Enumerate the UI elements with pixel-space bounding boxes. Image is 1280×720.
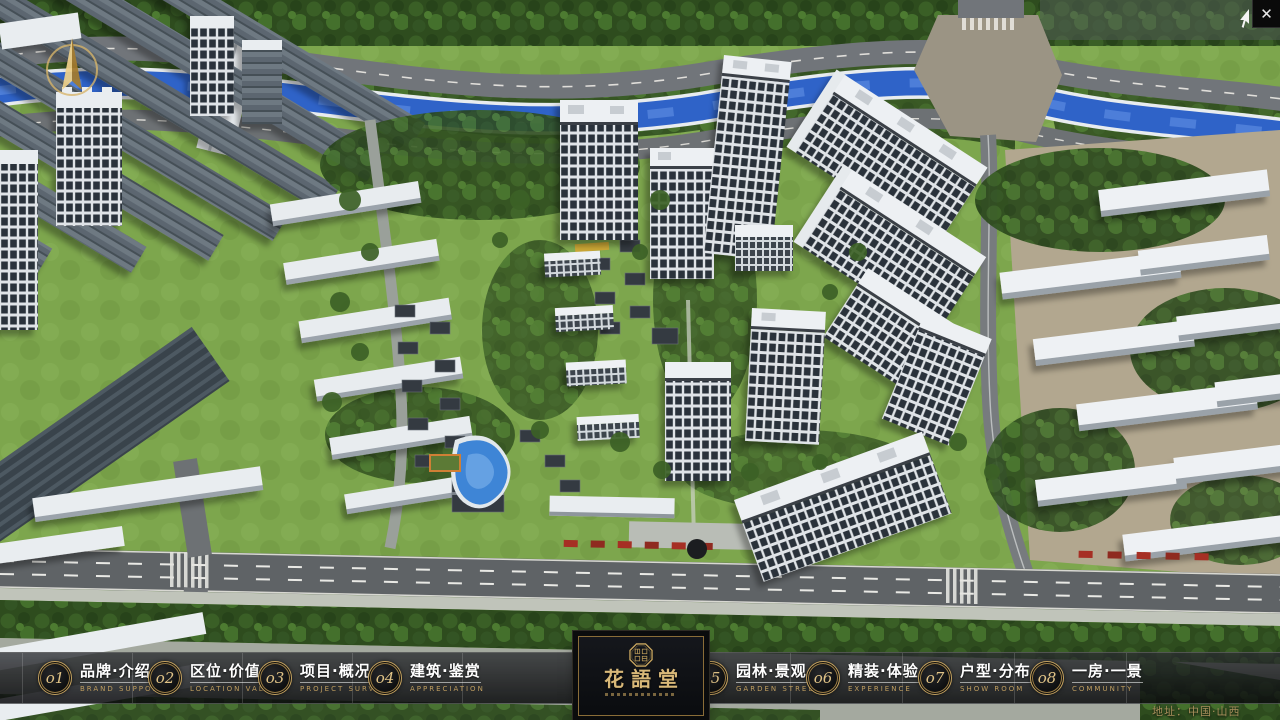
pavilion bbox=[652, 328, 678, 344]
nav-number-badge: o8 bbox=[1030, 661, 1064, 695]
masterplan-render bbox=[0, 0, 1280, 720]
nav-item-architecture[interactable]: o4 建筑·鉴赏 APPRECIATION bbox=[368, 653, 485, 703]
nav-item-unit-distribution[interactable]: o7 户型·分布 SHOW ROOM bbox=[918, 653, 1031, 703]
nav-label-zh: 区位·价值 bbox=[190, 663, 261, 683]
nav-item-brand-intro[interactable]: o1 品牌·介绍 BRAND SUPPORT bbox=[38, 653, 165, 703]
logo-seal-icon bbox=[628, 642, 654, 668]
tower bbox=[560, 100, 638, 240]
nav-item-garden-landscape[interactable]: o5 园林·景观 GARDEN STREET bbox=[694, 653, 821, 703]
nav-label-zh: 一房·一景 bbox=[1072, 663, 1143, 683]
nav-number-badge: o2 bbox=[148, 661, 182, 695]
right-lowrise-district bbox=[975, 130, 1280, 580]
nav-separator bbox=[22, 653, 23, 703]
nav-label-en: COMMUNITY bbox=[1072, 685, 1133, 693]
nav-label-zh: 项目·概况 bbox=[300, 663, 371, 683]
nav-number-badge: o6 bbox=[806, 661, 840, 695]
nav-item-room-view[interactable]: o8 一房·一景 COMMUNITY bbox=[1030, 653, 1143, 703]
midrise bbox=[735, 225, 793, 271]
tower bbox=[650, 148, 714, 279]
close-button[interactable]: ✕ bbox=[1252, 0, 1280, 28]
nav-label-en: APPRECIATION bbox=[410, 685, 485, 693]
close-icon: ✕ bbox=[1260, 5, 1273, 23]
nav-number-badge: o7 bbox=[918, 661, 952, 695]
nav-number-badge: o3 bbox=[258, 661, 292, 695]
tower bbox=[745, 308, 826, 445]
nav-label-zh: 户型·分布 bbox=[960, 663, 1031, 683]
masterplan-svg bbox=[0, 0, 1280, 720]
nav-label-zh: 精装·体验 bbox=[848, 663, 919, 683]
nav-label-en: EXPERIENCE bbox=[848, 685, 912, 693]
address-text: 地址：中国·山西 bbox=[1152, 703, 1241, 719]
tower bbox=[665, 362, 731, 481]
nav-number: o2 bbox=[156, 671, 175, 686]
nav-number: o8 bbox=[1038, 671, 1057, 686]
nav-number: o7 bbox=[926, 671, 945, 686]
nav-number-badge: o1 bbox=[38, 661, 72, 695]
nav-item-decoration-experience[interactable]: o6 精装·体验 EXPERIENCE bbox=[806, 653, 919, 703]
nav-label-en: SHOW ROOM bbox=[960, 685, 1024, 693]
presentation-screen: ✕ o1 品牌·介绍 BRAND SUPPORT o2 区位·价值 LOCATI… bbox=[0, 0, 1280, 720]
nav-number: o3 bbox=[266, 671, 285, 686]
compass-north-indicator bbox=[40, 34, 104, 102]
nav-number: o5 bbox=[702, 671, 721, 686]
nav-number: o6 bbox=[814, 671, 833, 686]
nav-number-badge: o4 bbox=[368, 661, 402, 695]
nav-label-zh: 建筑·鉴赏 bbox=[410, 663, 481, 683]
nav-number: o1 bbox=[46, 671, 65, 686]
project-logo[interactable]: 花語堂 bbox=[578, 636, 704, 716]
entrance-plaza-circle bbox=[687, 539, 707, 559]
nav-label-zh: 品牌·介绍 bbox=[80, 663, 151, 683]
nav-label-zh: 园林·景观 bbox=[736, 663, 807, 683]
logo-subtext bbox=[605, 693, 677, 696]
nav-number: o4 bbox=[376, 671, 395, 686]
logo-title: 花語堂 bbox=[597, 668, 685, 691]
